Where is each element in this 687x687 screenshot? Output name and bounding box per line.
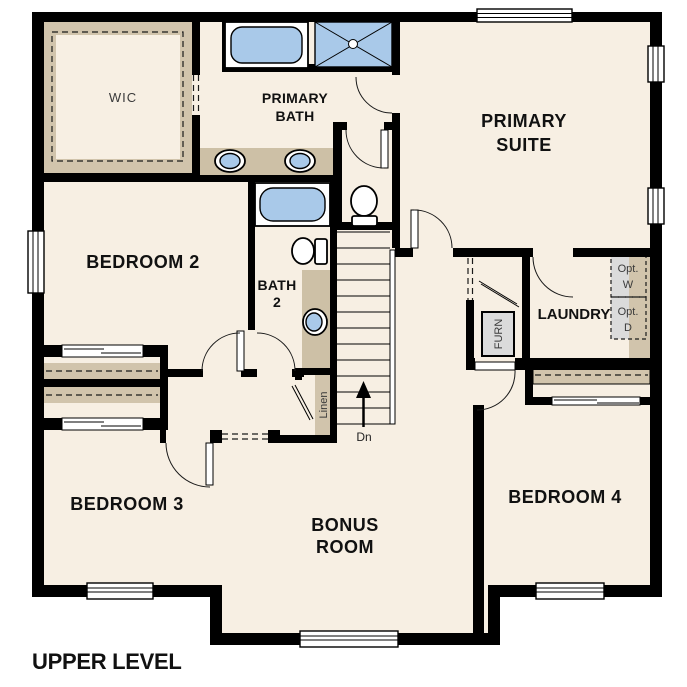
label-linen: Linen	[318, 392, 330, 419]
bedroom3-closet-doors	[62, 418, 143, 430]
bedroom4-door-leaf	[475, 362, 515, 370]
window-primary-suite-top	[477, 9, 572, 22]
bath2-sink	[303, 309, 327, 335]
window-bedroom2-left	[28, 231, 44, 293]
primary-shower	[315, 22, 392, 67]
plan-title: UPPER LEVEL	[32, 649, 182, 674]
window-primary-suite-right-2	[648, 188, 664, 224]
label-primary-suite-1: PRIMARY	[481, 111, 567, 131]
bath2-tub	[260, 188, 325, 221]
label-primary-bath-2: BATH	[275, 108, 314, 124]
label-bedroom3: BEDROOM 3	[70, 494, 184, 514]
wc-toilet	[351, 186, 377, 226]
bedroom3-door-leaf	[206, 443, 213, 485]
wc-door-leaf	[381, 130, 388, 168]
label-primary-suite-2: SUITE	[496, 135, 552, 155]
primary-tub	[231, 27, 302, 63]
label-furnace: FURN	[493, 319, 505, 350]
label-opt-dryer-1: Opt.	[618, 306, 639, 318]
label-bedroom4: BEDROOM 4	[508, 487, 622, 507]
label-bonus-1: BONUS	[311, 515, 379, 535]
label-wic: WIC	[109, 90, 137, 105]
label-bonus-2: ROOM	[316, 537, 374, 557]
window-bonus-bottom	[300, 631, 398, 647]
label-opt-dryer-2: D	[624, 322, 632, 334]
floor-plan-drawing: WIC PRIMARY BATH PRIMARY SUITE BEDROOM 2…	[0, 0, 687, 687]
primary-suite-door-leaf	[411, 210, 418, 248]
label-laundry: LAUNDRY	[538, 306, 611, 323]
label-primary-bath-1: PRIMARY	[262, 90, 329, 106]
bedroom4-closet-doors	[552, 397, 640, 405]
stair-railing	[390, 250, 395, 424]
label-bath2-1: BATH	[257, 277, 296, 293]
floor-plan: WIC PRIMARY BATH PRIMARY SUITE BEDROOM 2…	[0, 0, 687, 687]
label-stairs-down: Dn	[356, 430, 371, 444]
window-bedroom4-bottom	[536, 583, 604, 599]
bedroom2-closet-doors	[62, 345, 143, 357]
label-opt-washer-1: Opt.	[618, 263, 639, 275]
window-bedroom3-bottom	[87, 583, 153, 599]
label-opt-washer-2: W	[623, 279, 634, 291]
bedroom2-door-leaf	[237, 331, 244, 371]
window-primary-suite-right-1	[648, 46, 664, 82]
bath2-toilet	[292, 238, 327, 264]
label-bath2-2: 2	[273, 294, 281, 310]
label-bedroom2: BEDROOM 2	[86, 252, 200, 272]
